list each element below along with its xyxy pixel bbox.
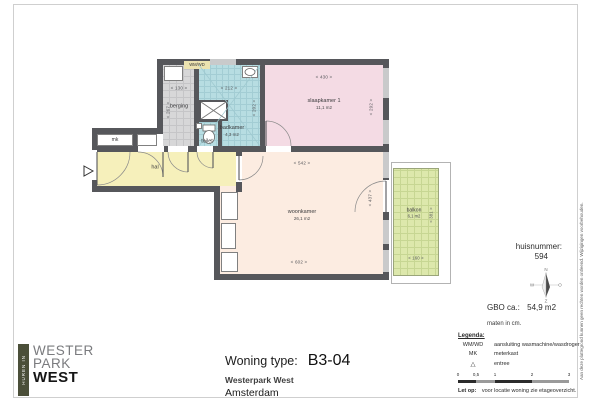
slaapkamer-name: slaapkamer 1	[307, 98, 340, 105]
gbo-value: 54,9 m2	[527, 303, 556, 312]
disclaimer-text: Aan deze plattegrond kunnen geen rechten…	[579, 150, 584, 380]
attention-note: Let op: voor locatie woning zie etageove…	[458, 388, 576, 394]
dim-slaapkamer-height: < 292 >	[369, 99, 374, 116]
slaapkamer-area: 11,1 m2	[307, 105, 340, 111]
westerpark-west-logo: HUREN IN WESTER PARK WEST	[18, 344, 94, 396]
woonkamer-name: woonkamer	[288, 209, 316, 216]
hal-name: hal	[151, 165, 158, 171]
badkamer-label: badkamer 4,3 m2	[220, 125, 244, 138]
badkamer-area: 4,3 m2	[220, 132, 244, 138]
legend-item-entree: △ entree	[458, 360, 578, 368]
scale-tick-1: 1	[494, 372, 497, 377]
washbasin-bowl-icon	[245, 69, 255, 76]
floorplan-page: WM/WD	[0, 0, 600, 400]
toilet-label: toilet	[201, 139, 213, 146]
logo-wordmark: WESTER PARK WEST	[33, 344, 94, 396]
city-name: Amsterdam	[225, 387, 350, 399]
scale-bar-segments	[458, 380, 570, 383]
huisnummer-value: 594	[480, 252, 562, 262]
woning-type-row: Woning type: B3-04	[225, 352, 350, 370]
compass-north: N	[544, 267, 547, 272]
berging-name: berging	[170, 104, 188, 110]
badkamer-name: badkamer	[220, 125, 244, 132]
scale-tick-2: 2	[531, 372, 534, 377]
legend-value-entree: entree	[494, 361, 510, 367]
dim-berging-height: < 267 >	[166, 102, 171, 119]
attention-note-text: voor locatie woning zie etageoverzicht.	[482, 388, 576, 394]
woning-type-value: B3-04	[308, 352, 351, 370]
legend-heading: Legenda:	[458, 333, 578, 339]
logo-vertical-bar: HUREN IN	[18, 344, 29, 396]
dim-balkon-width: < 160 >	[408, 256, 424, 261]
scale-tick-0: 0	[457, 372, 460, 377]
berging-label: berging	[170, 104, 188, 111]
legend-item-mk: MK meterkast	[458, 351, 578, 357]
woonkamer-area: 26,1 m2	[288, 216, 316, 222]
logo-line-west: WEST	[33, 370, 94, 385]
shower-cross-icon	[201, 102, 226, 119]
attention-note-label: Let op:	[458, 388, 476, 394]
dim-berging-width: < 130 >	[171, 86, 188, 91]
units-note: maten in cm.	[487, 321, 521, 327]
dim-woonkamer-width-bottom: < 602 >	[291, 260, 308, 265]
entree-arrow-icon	[84, 166, 93, 176]
legend-key-wmwd: WM/WD	[458, 342, 488, 348]
balkon-area: 6,1 m2	[407, 214, 422, 219]
mk-label: mk	[112, 137, 119, 143]
legend-item-wmwd: WM/WD aansluiting wasmachine/wasdroger	[458, 342, 578, 348]
scale-tick-3: 3	[568, 372, 571, 377]
legend-value-mk: meterkast	[494, 351, 518, 357]
legend-key-mk: MK	[458, 351, 488, 357]
legend: Legenda: WM/WD aansluiting wasmachine/wa…	[458, 333, 578, 368]
mk-name: mk	[112, 137, 119, 143]
woonkamer-label: woonkamer 26,1 m2	[288, 209, 316, 222]
compass-needle-light	[542, 273, 546, 297]
compass-needle-dark	[546, 273, 550, 297]
dim-slaapkamer-width: < 430 >	[316, 75, 333, 80]
gbo-line: GBO ca.: 54,9 m2	[487, 303, 556, 312]
huisnummer-block: huisnummer: 594	[480, 242, 562, 263]
dim-badkamer-height: < 202 >	[252, 100, 257, 117]
title-block: Woning type: B3-04 Westerpark West Amste…	[225, 352, 350, 399]
dim-woonkamer-width-top: < 542 >	[294, 161, 311, 166]
compass-rose: N O Z W	[530, 267, 562, 303]
dim-balkon-height: < 381 >	[429, 207, 434, 223]
woning-type-label: Woning type:	[225, 354, 298, 368]
logo-tab-text: HUREN IN	[21, 355, 26, 385]
dim-woonkamer-height: < 437 >	[368, 190, 373, 207]
scale-bar: 0 0,5 1 2 3	[458, 372, 570, 383]
hal-label: hal	[151, 165, 158, 172]
scale-tick-labels: 0 0,5 1 2 3	[458, 372, 570, 379]
gbo-label: GBO ca.:	[487, 303, 520, 312]
slaapkamer-label: slaapkamer 1 11,1 m2	[307, 98, 340, 111]
legend-value-wmwd: aansluiting wasmachine/wasdroger	[494, 342, 580, 348]
entree-triangle-icon: △	[458, 360, 488, 368]
project-name: Westerpark West	[225, 375, 350, 385]
dim-badkamer-width: < 212 >	[221, 86, 238, 91]
toilet-name: toilet	[201, 139, 213, 145]
compass-east: O	[558, 283, 562, 288]
huisnummer-label: huisnummer:	[480, 242, 562, 252]
scale-tick-05: 0,5	[473, 372, 479, 377]
balkon-label: balkon 6,1 m2	[407, 207, 422, 219]
